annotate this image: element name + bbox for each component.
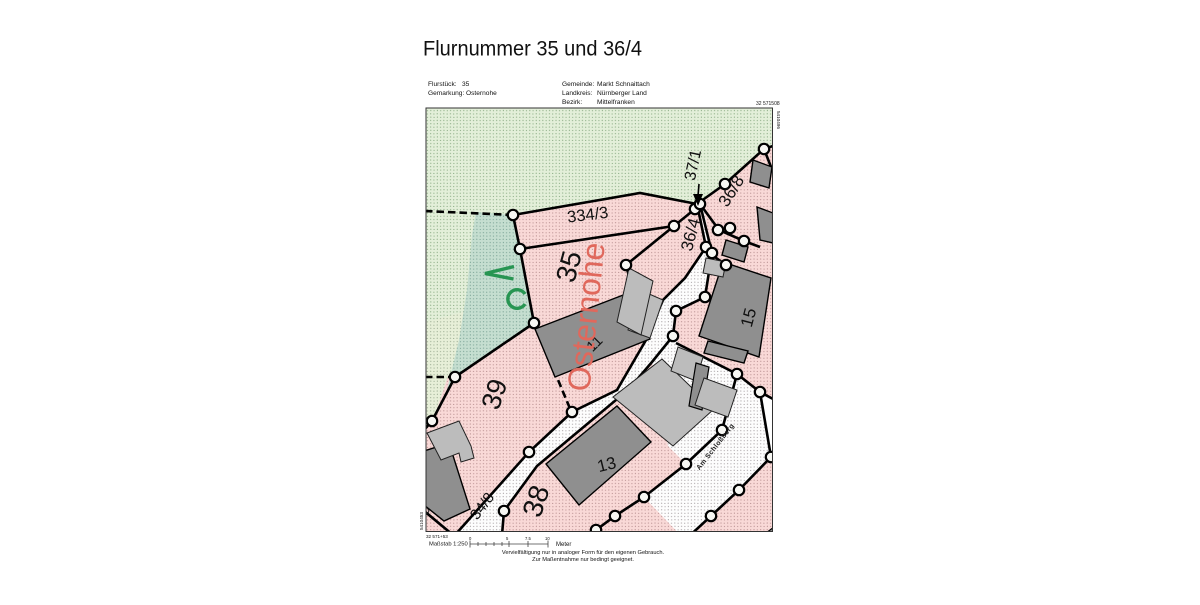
svg-text:Flurnummer 35 und 36/4: Flurnummer 35 und 36/4 — [423, 38, 642, 61]
svg-text:Vervielfältigung nur in analog: Vervielfältigung nur in analoger Form fü… — [502, 550, 665, 556]
svg-text:Bezirk:: Bezirk: — [562, 99, 582, 106]
svg-text:Gemeinde:: Gemeinde: — [562, 81, 594, 88]
svg-text:Landkreis:: Landkreis: — [562, 90, 593, 97]
svg-text:Mittelfranken: Mittelfranken — [597, 99, 635, 106]
svg-text:32 571+53: 32 571+53 — [426, 534, 448, 539]
svg-text:35: 35 — [462, 81, 470, 88]
svg-text:Meter: Meter — [556, 542, 571, 548]
svg-text:7.5: 7.5 — [525, 536, 531, 541]
svg-text:Nürnberger Land: Nürnberger Land — [597, 90, 647, 97]
svg-text:10: 10 — [545, 536, 550, 541]
svg-text:32 571508: 32 571508 — [756, 101, 780, 107]
svg-text:Maßstab 1:250: Maßstab 1:250 — [429, 542, 468, 548]
svg-text:5410453: 5410453 — [419, 512, 424, 530]
svg-text:Markt Schnaittach: Markt Schnaittach — [597, 81, 650, 88]
svg-text:Flurstück:: Flurstück: — [428, 81, 457, 88]
svg-text:5410496: 5410496 — [776, 111, 781, 129]
svg-text:Osternohe: Osternohe — [466, 90, 497, 97]
svg-text:Zur Maßentnahme nur bedingt ge: Zur Maßentnahme nur bedingt geeignet. — [532, 557, 634, 563]
svg-text:Gemarkung:: Gemarkung: — [428, 90, 464, 97]
